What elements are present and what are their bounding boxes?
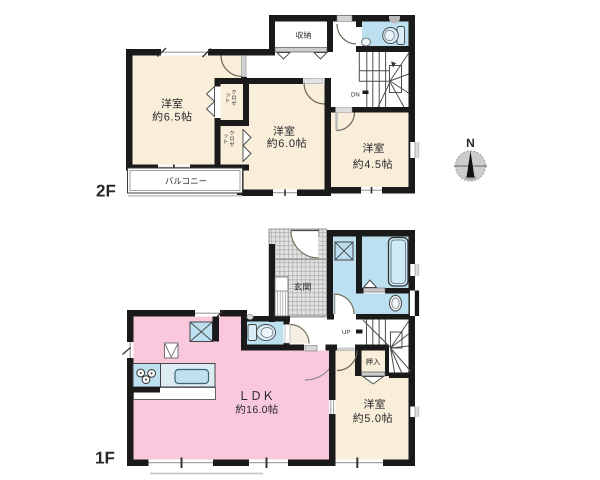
svg-text:2F: 2F <box>96 182 116 201</box>
svg-text:洋室: 洋室 <box>273 125 295 138</box>
svg-text:DN: DN <box>351 92 360 99</box>
svg-text:ＬＤＫ: ＬＤＫ <box>238 389 274 403</box>
svg-text:収納: 収納 <box>296 31 312 40</box>
svg-text:約5.0帖: 約5.0帖 <box>353 412 394 425</box>
svg-text:ット: ット <box>222 133 228 144</box>
svg-text:1F: 1F <box>95 449 115 468</box>
svg-text:約4.5帖: 約4.5帖 <box>353 158 394 171</box>
svg-text:洋室: 洋室 <box>161 98 183 111</box>
svg-text:バルコニー: バルコニー <box>165 176 207 186</box>
svg-text:玄関: 玄関 <box>293 282 311 292</box>
svg-text:クロゼ: クロゼ <box>230 89 237 106</box>
svg-text:洋室: 洋室 <box>364 398 386 411</box>
svg-text:UP: UP <box>342 329 350 336</box>
svg-text:洋室: 洋室 <box>363 142 385 155</box>
svg-text:押入: 押入 <box>366 358 381 367</box>
svg-text:約6.0帖: 約6.0帖 <box>267 137 308 150</box>
svg-text:クロゼ: クロゼ <box>228 130 235 147</box>
svg-text:約16.0帖: 約16.0帖 <box>235 404 278 416</box>
svg-text:N: N <box>466 136 475 150</box>
svg-text:ット: ット <box>224 92 230 103</box>
svg-text:約6.5帖: 約6.5帖 <box>152 111 193 124</box>
